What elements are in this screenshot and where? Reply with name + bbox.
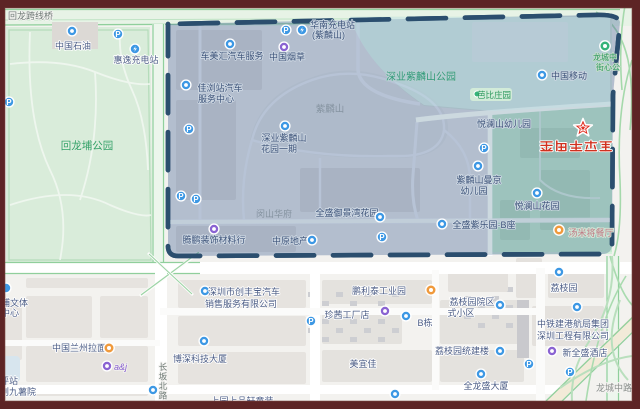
svg-text:深业紫麟山: 深业紫麟山 bbox=[261, 132, 306, 143]
svg-text:新全盛酒店: 新全盛酒店 bbox=[562, 347, 607, 358]
svg-text:鹏利泰工业园: 鹏利泰工业园 bbox=[352, 285, 406, 296]
svg-text:珍茜工厂店: 珍茜工厂店 bbox=[324, 309, 369, 320]
svg-text:长坂北路: 长坂北路 bbox=[159, 362, 168, 401]
svg-text:销售服务有限公司: 销售服务有限公司 bbox=[205, 298, 277, 309]
svg-text:荔枝园: 荔枝园 bbox=[550, 282, 577, 293]
svg-text:华南充电站: 华南充电站 bbox=[310, 19, 355, 30]
svg-text:中原地产: 中原地产 bbox=[272, 235, 308, 246]
svg-text:a&j: a&j bbox=[114, 362, 128, 372]
svg-text:紫麟山曼京: 紫麟山曼京 bbox=[456, 174, 501, 185]
svg-text:荔枝园统建楼: 荔枝园统建楼 bbox=[435, 345, 489, 356]
svg-text:腾鹏装饰材料行: 腾鹏装饰材料行 bbox=[182, 234, 245, 245]
svg-text:服务中心: 服务中心 bbox=[198, 93, 234, 104]
svg-text:车美汇汽车服务: 车美汇汽车服务 bbox=[200, 50, 263, 61]
svg-text:式小区: 式小区 bbox=[447, 307, 474, 318]
svg-text:芭比庄园: 芭比庄园 bbox=[477, 90, 511, 100]
svg-text:荔枝园院区: 荔枝园院区 bbox=[449, 296, 494, 307]
svg-text:中国兰州拉面: 中国兰州拉面 bbox=[52, 342, 106, 353]
svg-text:闵山华府: 闵山华府 bbox=[256, 208, 292, 219]
svg-text:深业紫麟山公园: 深业紫麟山公园 bbox=[386, 70, 456, 83]
svg-text:深圳市创丰宝汽车: 深圳市创丰宝汽车 bbox=[208, 286, 280, 297]
svg-text:花园一期: 花园一期 bbox=[261, 143, 297, 154]
svg-text:紫麟山: 紫麟山 bbox=[316, 103, 345, 115]
svg-text:汤米将餐厅: 汤米将餐厅 bbox=[568, 227, 613, 238]
svg-text:中国烟草: 中国烟草 bbox=[269, 51, 305, 62]
svg-text:美宜佳: 美宜佳 bbox=[349, 358, 376, 369]
svg-text:幼儿园: 幼儿园 bbox=[460, 185, 487, 196]
svg-text:中铁建港航局集团: 中铁建港航局集团 bbox=[537, 318, 609, 329]
svg-text:佳浏站汽车: 佳浏站汽车 bbox=[197, 82, 242, 93]
svg-text:(紫麟山): (紫麟山) bbox=[312, 29, 345, 40]
svg-text:博深科技大厦: 博深科技大厦 bbox=[173, 353, 227, 364]
svg-text:回龙埔公园: 回龙埔公园 bbox=[61, 139, 114, 152]
svg-text:悦澜山花园: 悦澜山花园 bbox=[514, 200, 559, 211]
svg-text:B栋: B栋 bbox=[417, 317, 432, 328]
svg-text:龙城中路: 龙城中路 bbox=[596, 382, 632, 393]
svg-text:中国石油: 中国石油 bbox=[55, 40, 91, 51]
svg-text:全龙盛大厦: 全龙盛大厦 bbox=[463, 380, 508, 391]
svg-text:中国移动: 中国移动 bbox=[551, 70, 587, 81]
svg-text:惠逸充电站: 惠逸充电站 bbox=[113, 54, 158, 65]
svg-text:深圳工程有限公司: 深圳工程有限公司 bbox=[537, 330, 609, 341]
svg-text:回龙跨线桥: 回龙跨线桥 bbox=[8, 10, 53, 21]
svg-text:全盛御景湾花园: 全盛御景湾花园 bbox=[315, 207, 378, 218]
svg-text:全盛紫乐园·B座: 全盛紫乐园·B座 bbox=[452, 219, 515, 230]
svg-text:悦澜山幼儿园: 悦澜山幼儿园 bbox=[477, 118, 531, 129]
